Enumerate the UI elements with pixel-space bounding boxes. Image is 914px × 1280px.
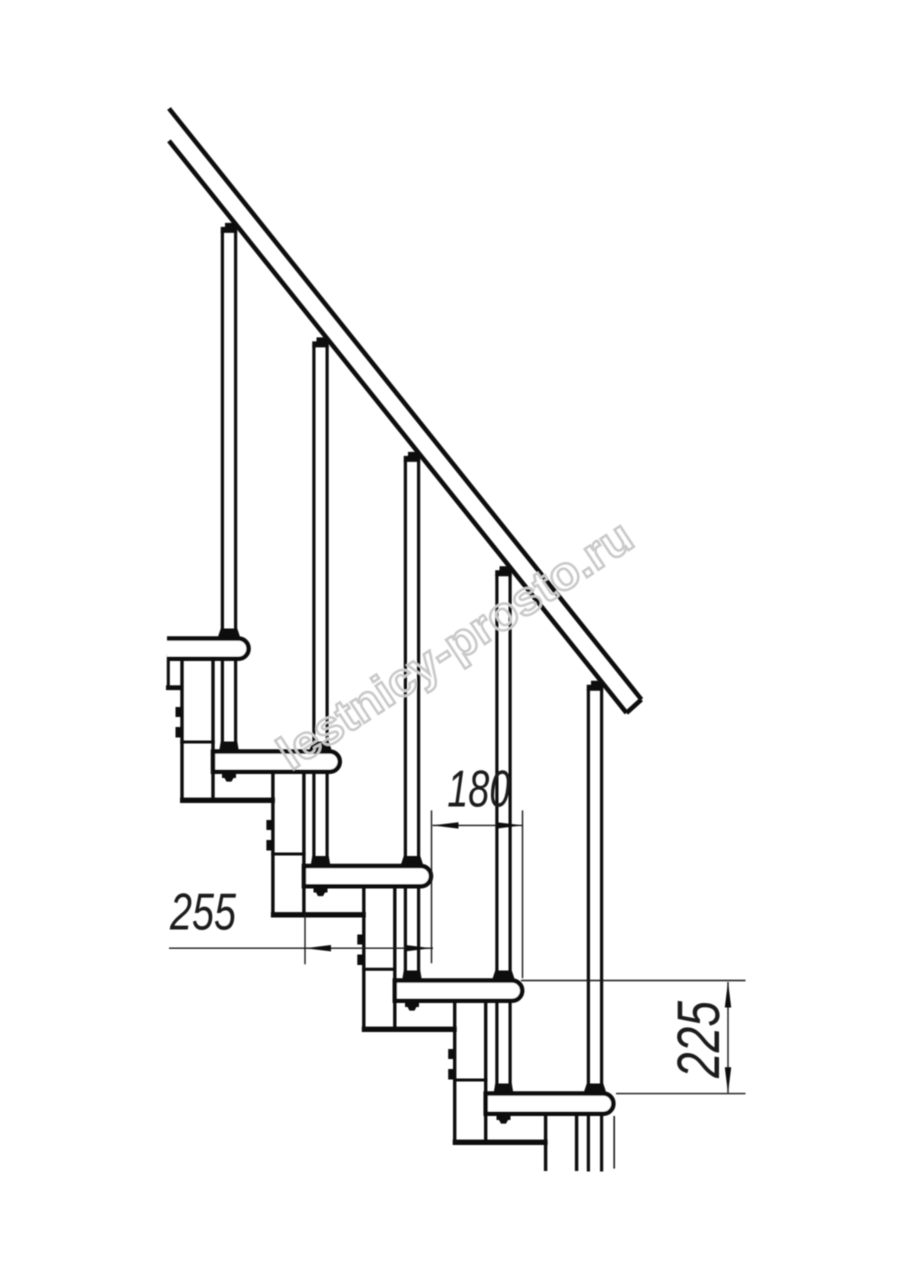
- svg-text:225: 225: [665, 1001, 732, 1079]
- svg-text:255: 255: [169, 884, 237, 942]
- svg-text:180: 180: [447, 761, 510, 819]
